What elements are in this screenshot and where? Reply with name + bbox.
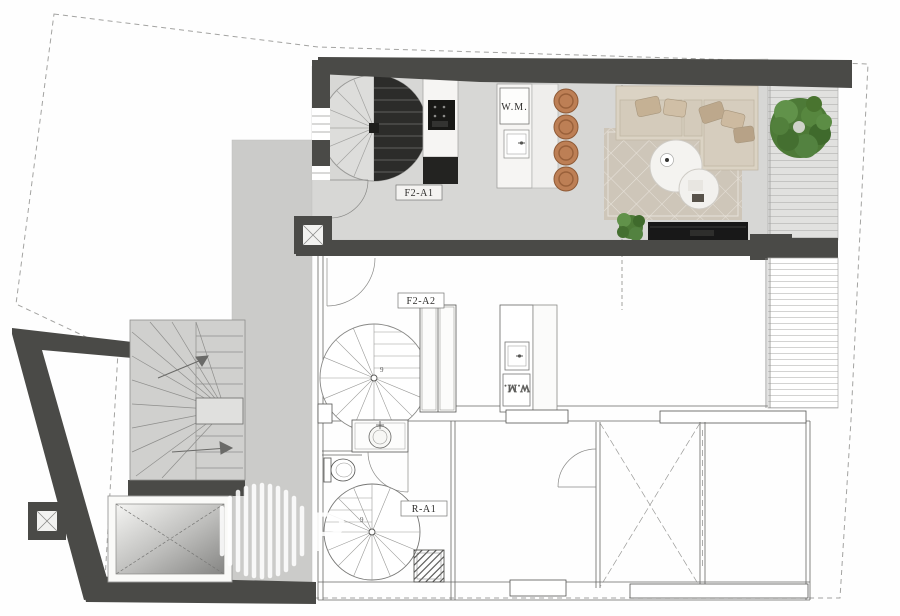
island-upper: W.M. xyxy=(497,84,558,188)
unit-lower: 9 xyxy=(318,420,810,600)
column-x-upper xyxy=(294,216,332,254)
hatched-duct xyxy=(414,550,444,582)
washing-machine-label-rotated: W.M. xyxy=(503,382,529,393)
watermark-letter: P xyxy=(310,500,347,563)
unit-label-middle: F2-A2 xyxy=(406,296,435,307)
unit-label-lower: R-A1 xyxy=(412,504,437,515)
balcony-middle xyxy=(766,258,838,408)
tv-console xyxy=(648,222,748,242)
bathroom xyxy=(324,420,408,492)
spiral-stair-middle: 9 xyxy=(320,324,428,432)
unit-label-upper: F2-A1 xyxy=(404,188,433,199)
column-x-lower xyxy=(28,502,66,540)
wardrobe xyxy=(420,305,456,412)
stair-count-lower: 9 xyxy=(360,516,364,524)
bottom-wall-frames xyxy=(510,580,808,598)
toilet xyxy=(324,458,355,482)
main-staircase xyxy=(130,320,245,480)
void-cross xyxy=(600,423,700,587)
stair-count-middle: 9 xyxy=(380,366,384,374)
wall-balcony-divider xyxy=(752,238,838,258)
floor-plan-svg: W.M. xyxy=(0,0,900,616)
base-cabinet xyxy=(423,157,458,184)
bathroom-sink xyxy=(352,420,408,452)
wall-mid xyxy=(296,240,775,256)
skylight xyxy=(108,496,232,582)
wall-stair-bottom xyxy=(128,480,245,496)
floor-plan-image: W.M. xyxy=(0,0,900,616)
door-lower-room xyxy=(558,449,596,487)
island-middle: W.M. xyxy=(500,305,557,412)
door-middle xyxy=(327,258,375,306)
washing-machine-label: W.M. xyxy=(501,102,527,113)
plant-small xyxy=(617,213,645,241)
kitchen-counter xyxy=(423,76,458,184)
wall-left-upper xyxy=(312,60,330,108)
spiral-stair-upper xyxy=(321,75,428,181)
